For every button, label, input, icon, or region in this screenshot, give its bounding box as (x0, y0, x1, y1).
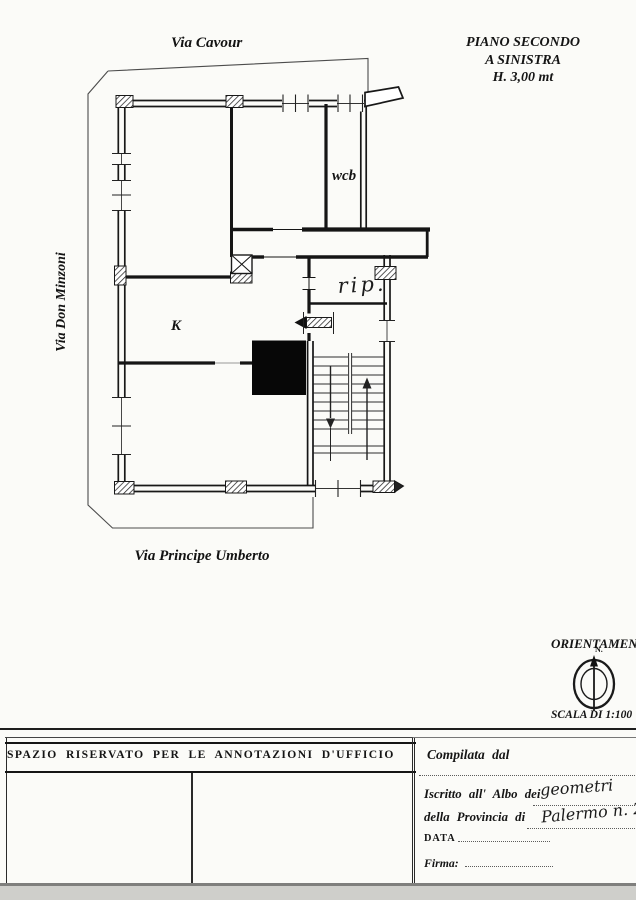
register-label-2: della Provincia di (424, 810, 525, 825)
register-label-1: Iscritto all' Albo dei (424, 787, 540, 802)
room-label-storage: rip. (337, 271, 387, 298)
floorplan-drawing: Via Cavour Via Don Minzoni Via Principe … (0, 0, 636, 580)
entrance-door-arrow (295, 312, 334, 334)
scan-edge-band (0, 883, 636, 900)
register-value-1: geometri (539, 775, 613, 799)
title-line-2: A SINISTRA (458, 52, 588, 70)
box-top-thick-line (5, 742, 416, 744)
staircase (314, 353, 384, 461)
register-value-2: Palermo n. 2 (540, 799, 636, 827)
title-line-1: PIANO SECONDO (458, 34, 588, 52)
scale-label: SCALA DI 1:100 (551, 709, 632, 721)
title-line-3: H. 3,00 mt (458, 69, 588, 87)
shaft-x-symbol (232, 255, 253, 274)
room-label-wc: wcb (332, 168, 357, 184)
elevator-shaft-filled (252, 341, 306, 396)
office-annotations-box: SPAZIO RISERVATO PER LE ANNOTAZIONI D'UF… (6, 737, 415, 883)
room-label-kitchen: K (170, 318, 182, 334)
signature-label: Firma: (424, 856, 459, 871)
compiled-by-label: Compilata dal (427, 747, 509, 763)
header-underline (5, 771, 416, 773)
dotted-line-3 (527, 828, 636, 829)
street-label-top: Via Cavour (171, 34, 243, 51)
box-top-thin-line (5, 737, 416, 738)
street-label-left: Via Don Minzoni (54, 252, 69, 352)
office-box-header: SPAZIO RISERVATO PER LE ANNOTAZIONI D'UF… (7, 748, 386, 761)
dotted-line-signature (465, 866, 553, 867)
title-block: PIANO SECONDO A SINISTRA H. 3,00 mt (458, 34, 588, 87)
compass-icon (566, 650, 636, 716)
horizontal-divider-rule (0, 728, 636, 730)
dotted-line-date (458, 841, 550, 842)
date-label: DATA (424, 833, 456, 844)
office-box-column-divider (191, 773, 193, 883)
scanned-floorplan-document: Via Cavour Via Don Minzoni Via Principe … (0, 0, 636, 900)
street-label-bottom: Via Principe Umberto (135, 548, 270, 564)
compilation-form: Compilata dal Iscritto all' Albo dei geo… (412, 737, 636, 884)
